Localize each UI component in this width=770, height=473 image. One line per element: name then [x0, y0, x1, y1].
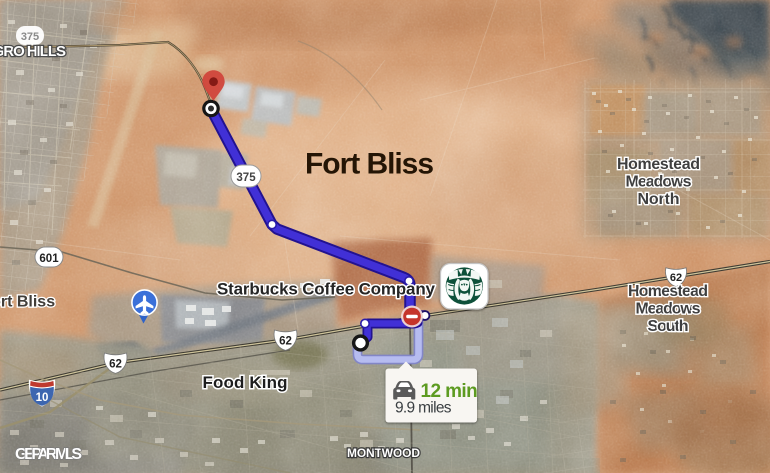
svg-text:Homestead: Homestead	[628, 283, 708, 300]
svg-text:375: 375	[21, 31, 39, 43]
svg-text:GEPAR MLS: GEPAR MLS	[15, 446, 82, 463]
svg-text:9.9 miles: 9.9 miles	[395, 400, 452, 417]
svg-text:AGRO HILLS: AGRO HILLS	[0, 43, 66, 60]
svg-text:Meadows: Meadows	[626, 174, 692, 191]
svg-text:North: North	[638, 191, 680, 208]
svg-text:Fort Bliss: Fort Bliss	[0, 294, 55, 311]
svg-text:Starbucks Coffee Company: Starbucks Coffee Company	[217, 280, 436, 299]
svg-text:South: South	[648, 318, 689, 335]
svg-text:MONTWOOD: MONTWOOD	[347, 446, 420, 460]
svg-text:Meadows: Meadows	[636, 301, 701, 318]
svg-text:62: 62	[279, 336, 292, 348]
svg-text:62: 62	[109, 359, 122, 371]
svg-text:375: 375	[236, 172, 256, 184]
svg-text:10: 10	[36, 392, 49, 404]
svg-text:601: 601	[39, 253, 59, 265]
svg-text:Homestead: Homestead	[617, 156, 700, 173]
svg-text:Food King: Food King	[203, 373, 288, 392]
svg-text:Fort Bliss: Fort Bliss	[305, 148, 434, 181]
